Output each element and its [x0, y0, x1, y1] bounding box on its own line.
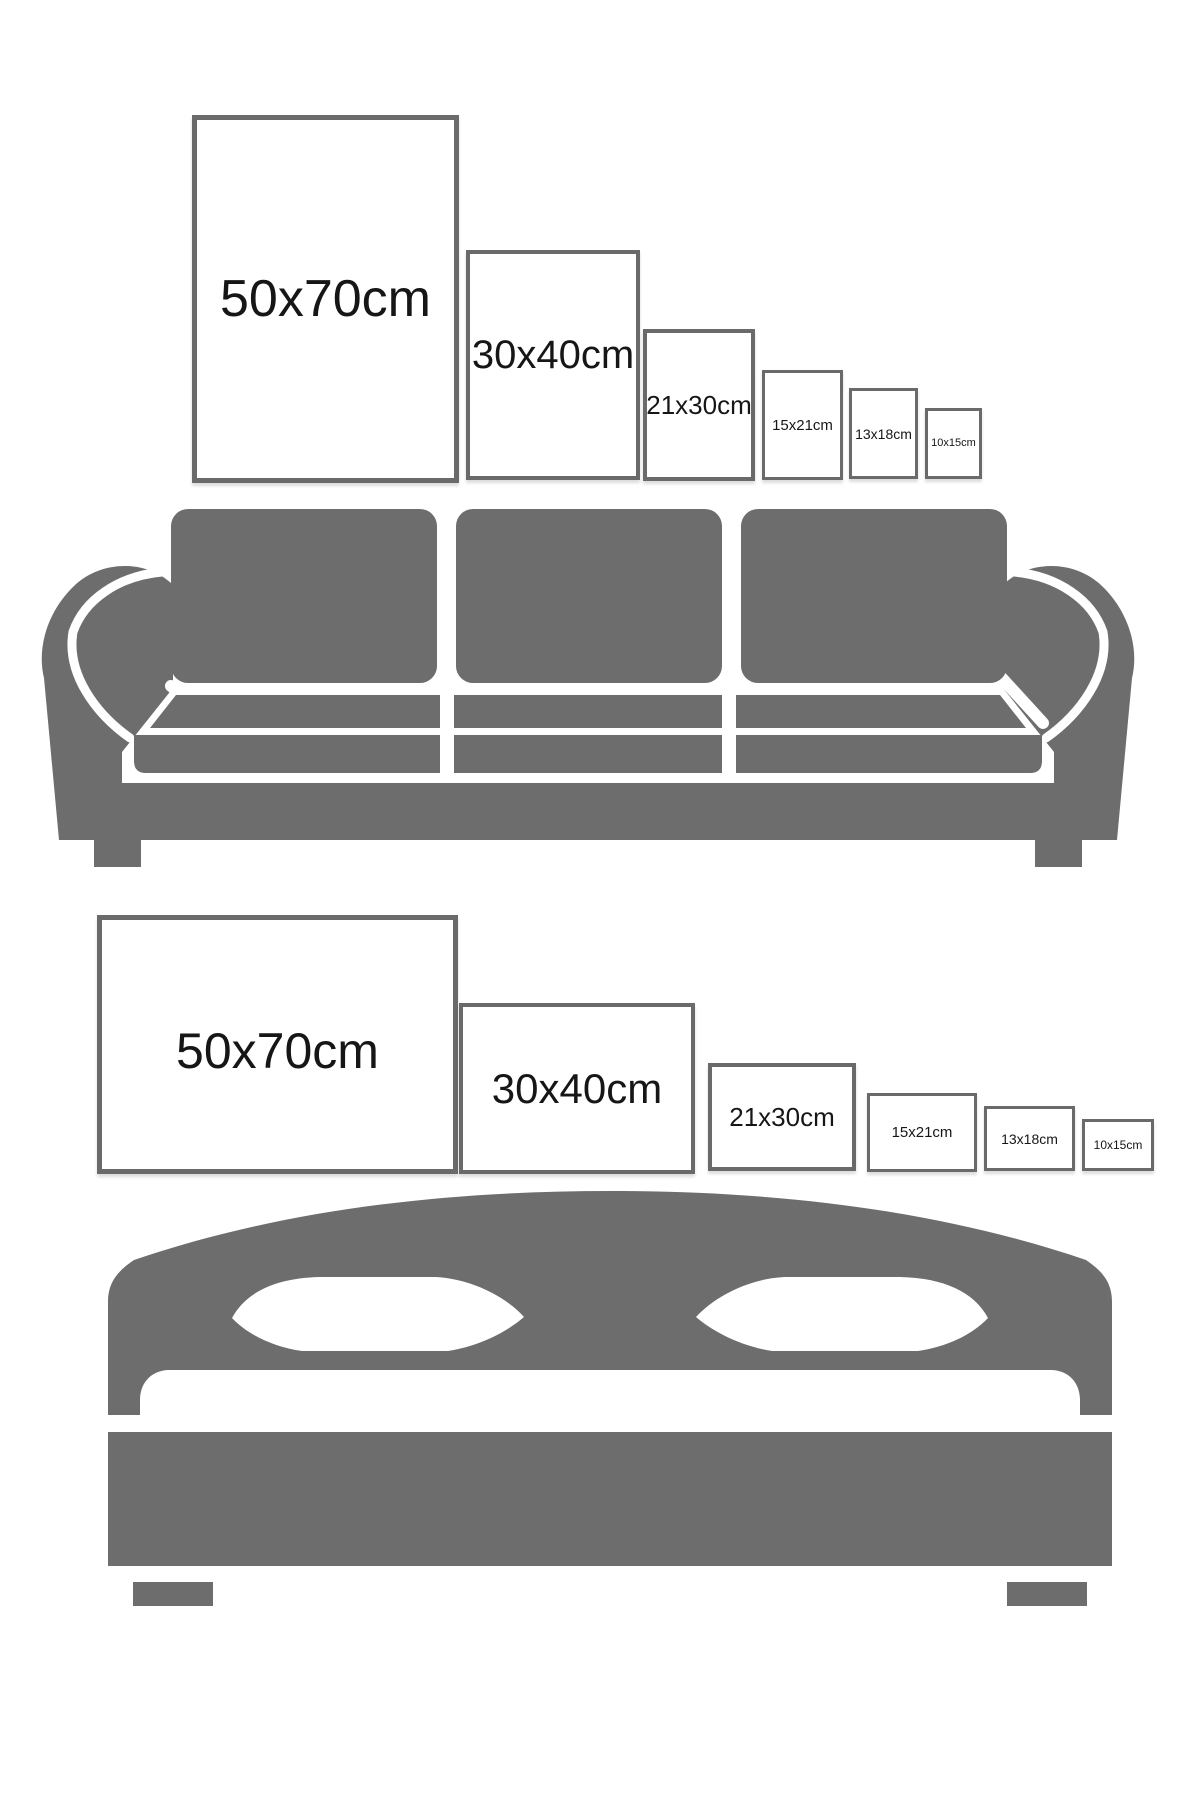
frame-landscape-21x30: 21x30cm [708, 1063, 856, 1171]
frame-landscape-50x70: 50x70cm [97, 915, 458, 1174]
sofa-back-cushion [171, 509, 437, 683]
frame-label: 50x70cm [220, 273, 431, 325]
frame-label: 50x70cm [176, 1026, 379, 1076]
sofa-foot-right [1035, 840, 1082, 867]
frame-label: 10x15cm [931, 438, 976, 449]
frame-landscape-10x15: 10x15cm [1082, 1119, 1154, 1171]
sofa-seat-cushions [134, 735, 1042, 773]
bed-icon [108, 1191, 1112, 1606]
frame-landscape-30x40: 30x40cm [459, 1003, 695, 1174]
bed-foot-left [133, 1582, 213, 1606]
frame-portrait-10x15: 10x15cm [925, 408, 982, 479]
sofa-base [61, 783, 1115, 840]
bed-base [108, 1432, 1112, 1566]
frame-label: 15x21cm [892, 1125, 953, 1140]
frame-landscape-15x21: 15x21cm [867, 1093, 977, 1172]
frame-label: 21x30cm [646, 392, 752, 418]
bed-pillow-left [232, 1277, 524, 1351]
frame-label: 10x15cm [1094, 1139, 1143, 1151]
frame-label: 21x30cm [729, 1104, 835, 1130]
frame-label: 13x18cm [855, 427, 912, 441]
sofa-back-cushion [456, 509, 722, 683]
sofa-armrest-right-seam [1000, 676, 1043, 723]
frame-portrait-21x30: 21x30cm [643, 329, 755, 481]
sofa-armrest-left [42, 566, 173, 840]
bed-headboard [108, 1191, 1112, 1415]
sofa-foot-left [94, 840, 141, 867]
bed-foot-right [1007, 1582, 1087, 1606]
sofa-icon [42, 509, 1135, 867]
bed-pillow-right [696, 1277, 988, 1351]
sofa-armrest-left-seam [171, 686, 222, 727]
sofa-back-cushion [741, 509, 1007, 683]
frame-label: 30x40cm [472, 335, 634, 375]
frame-label: 15x21cm [772, 418, 833, 433]
frame-portrait-50x70: 50x70cm [192, 115, 459, 483]
frame-portrait-30x40: 30x40cm [466, 250, 640, 480]
frame-label: 13x18cm [1001, 1132, 1058, 1146]
sofa-armrest-right-piping [1014, 572, 1104, 738]
frame-label: 30x40cm [492, 1068, 662, 1110]
frame-portrait-13x18: 13x18cm [849, 388, 918, 479]
size-guide-infographic: 50x70cm 30x40cm 21x30cm 15x21cm 13x18cm … [0, 0, 1200, 1800]
sofa-seat-divider [447, 691, 729, 777]
frame-portrait-15x21: 15x21cm [762, 370, 843, 480]
frame-landscape-13x18: 13x18cm [984, 1106, 1075, 1171]
sofa-seat-deck [150, 695, 1026, 728]
sofa-armrest-right [1000, 566, 1134, 840]
